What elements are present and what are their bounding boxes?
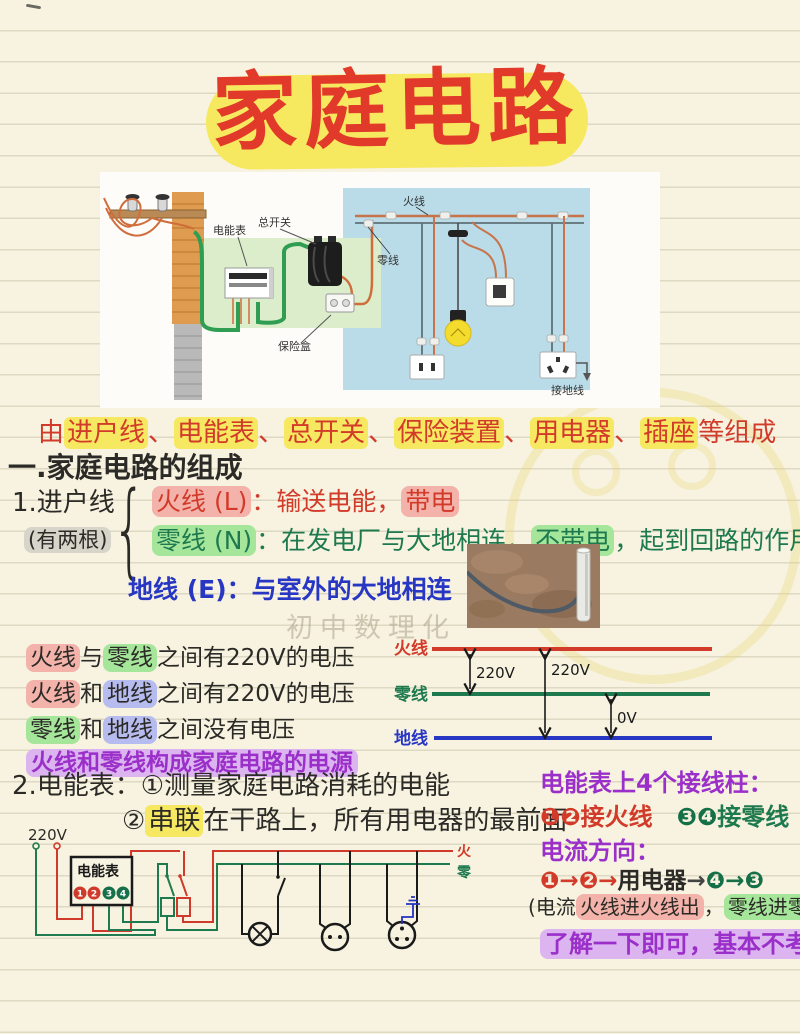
text-segment: 等组成 xyxy=(698,418,776,448)
fuse-box-label: 保险盒 xyxy=(278,339,311,353)
text-segment: 带电 xyxy=(401,486,459,517)
terminal-1: 1 xyxy=(77,890,83,900)
watermark-eye-icon xyxy=(572,448,620,496)
text-segment: 之间有220V的电压 xyxy=(157,645,355,671)
fuse-box-icon xyxy=(326,294,354,312)
text-segment: (电流 xyxy=(528,895,576,919)
live-wire-label: 火线 xyxy=(403,194,425,208)
meter-label: 电能表 xyxy=(213,223,246,237)
voltage-note-3: 零线和地线之间没有电压 xyxy=(26,710,295,744)
text-segment: ：输送电能， xyxy=(251,487,401,516)
text-segment: 、 xyxy=(614,418,640,448)
vd-live-label: 火线 xyxy=(394,638,428,659)
text-segment: 火线 xyxy=(26,680,80,708)
voltage-note-2: 火线和地线之间有220V的电压 xyxy=(26,674,355,708)
text-segment: 零线 (N) xyxy=(152,525,256,556)
socket-three-hole xyxy=(387,851,417,948)
vd-ground-label: 地线 xyxy=(394,728,428,749)
electric-meter-icon xyxy=(225,268,273,298)
voltage-diagram: 火线 零线 地线 220V 220V 0V xyxy=(382,633,722,762)
meter-terminals-heading: 电能表上4个接线柱： xyxy=(540,763,773,798)
text-segment: 总开关 xyxy=(284,417,368,449)
text-segment: 地线 (E)：与室外的大地相连 xyxy=(128,575,452,604)
neutral-short-label: 零 xyxy=(456,864,472,881)
text-segment: 地线 xyxy=(103,680,157,708)
vd-value-live-neutral: 220V xyxy=(476,664,516,682)
vd-value-live-ground: 220V xyxy=(551,661,591,679)
main-switch-icon xyxy=(308,236,342,286)
meter-circuit-schematic: 220V xyxy=(20,824,490,963)
text-segment: 和 xyxy=(80,681,103,707)
exam-note: 了解一下即可，基本不考 xyxy=(540,924,800,959)
composition-line: 由进户线、电能表、总开关、保险装置、用电器、插座等组成 xyxy=(38,416,776,450)
text-segment: 、 xyxy=(504,418,530,448)
incoming-wire-sublabel: (有两根) xyxy=(24,524,111,554)
text-segment: 、 xyxy=(258,418,284,448)
text-segment: 地线 xyxy=(103,716,157,744)
neutral-wire-label: 零线 xyxy=(377,253,399,267)
text-segment: ❸❹ xyxy=(677,803,718,831)
vd-value-neutral-ground: 0V xyxy=(617,709,638,727)
meter-box: 电能表 1 2 3 4 xyxy=(71,857,132,905)
socket-two-hole xyxy=(320,851,350,950)
text-segment: 插座 xyxy=(640,417,698,449)
section2-line1: 2.电能表：①测量家庭电路消耗的电能 xyxy=(12,765,450,802)
lamp-branch xyxy=(242,851,285,945)
text-segment: 和 xyxy=(80,717,103,743)
text-segment: 电能表 xyxy=(174,417,258,449)
text-segment: 火线进火线出 xyxy=(576,894,704,920)
text-segment: (有两根) xyxy=(24,527,111,553)
live-wire-note: 火线 (L)：输送电能，带电 xyxy=(152,482,459,518)
note-page: 初中数理化 家庭电路 xyxy=(0,0,800,1034)
text-segment: 零线 xyxy=(26,716,80,744)
text-segment: 接零线 xyxy=(717,803,789,831)
terminal-3: 3 xyxy=(106,890,112,900)
earth-wire-note: 地线 (E)：与室外的大地相连 xyxy=(128,570,452,606)
household-circuit-illustration: 电能表 总开关 保险盒 xyxy=(100,172,660,408)
text-segment: 了解一下即可，基本不考 xyxy=(540,929,800,959)
text-segment: 与 xyxy=(80,645,103,671)
text-segment: 保险装置 xyxy=(394,417,504,449)
illustration-svg: 电能表 总开关 保险盒 xyxy=(100,172,660,408)
text-segment: ，起到回路的作用 xyxy=(614,526,800,555)
ground-wire-photo xyxy=(467,544,600,628)
text-segment: 用电器 xyxy=(530,417,614,449)
meter-box-label: 电能表 xyxy=(77,863,120,880)
text-segment xyxy=(653,803,677,831)
live-short-label: 火 xyxy=(457,844,472,860)
page-title: 家庭电路 xyxy=(189,56,603,165)
text-segment: 进户线 xyxy=(64,417,148,449)
text-segment: 零线进零线出 xyxy=(724,894,800,920)
vd-neutral-label: 零线 xyxy=(393,684,428,705)
text-segment: 火线 xyxy=(26,644,80,672)
text-segment: 之间没有电压 xyxy=(157,717,295,743)
text-segment: ❶❷ xyxy=(540,803,581,831)
terminal-4: 4 xyxy=(120,890,126,900)
text-segment: 零线 xyxy=(103,644,157,672)
current-flow-line: ❶→❷→用电器→❹→❸ xyxy=(540,861,764,895)
page-mark xyxy=(26,4,41,10)
current-in-out-note: (电流火线进火线出，零线进零线出 xyxy=(528,891,800,920)
ground-wire-label: 接地线 xyxy=(551,383,584,397)
voltage-note-1: 火线与零线之间有220V的电压 xyxy=(26,638,355,672)
text-segment: 火线 (L) xyxy=(152,486,251,517)
terminal-2: 2 xyxy=(91,890,97,900)
text-segment: 、 xyxy=(148,418,174,448)
incoming-wire-label: 1.进户线 xyxy=(12,482,115,519)
source-voltage-label: 220V xyxy=(28,826,68,844)
text-segment: ， xyxy=(704,895,724,919)
meter-terminals-line: ❶❷接火线 ❸❹接零线 xyxy=(540,797,789,832)
text-segment: 、 xyxy=(368,418,394,448)
pvc-pipe xyxy=(577,549,590,621)
main-switch-label: 总开关 xyxy=(258,215,291,229)
text-segment: 之间有220V的电压 xyxy=(157,681,355,707)
text-segment: 接火线 xyxy=(581,803,653,831)
text-segment: 由 xyxy=(38,418,64,448)
